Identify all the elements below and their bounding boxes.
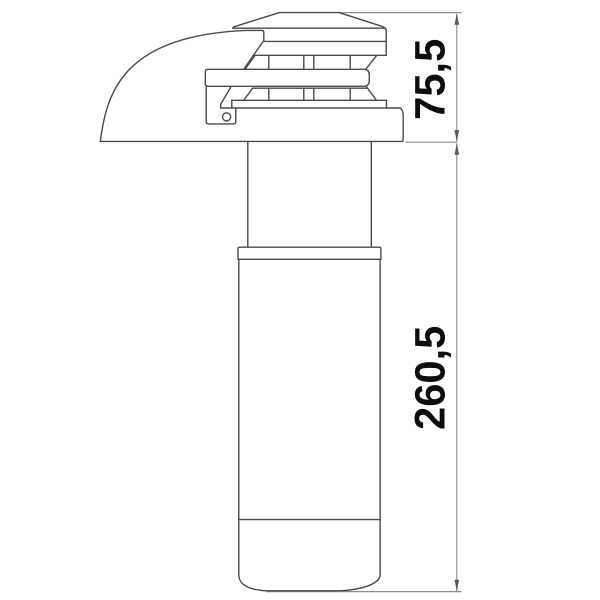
svg-text:260,5: 260,5 <box>406 326 454 430</box>
svg-text:75,5: 75,5 <box>406 39 454 120</box>
